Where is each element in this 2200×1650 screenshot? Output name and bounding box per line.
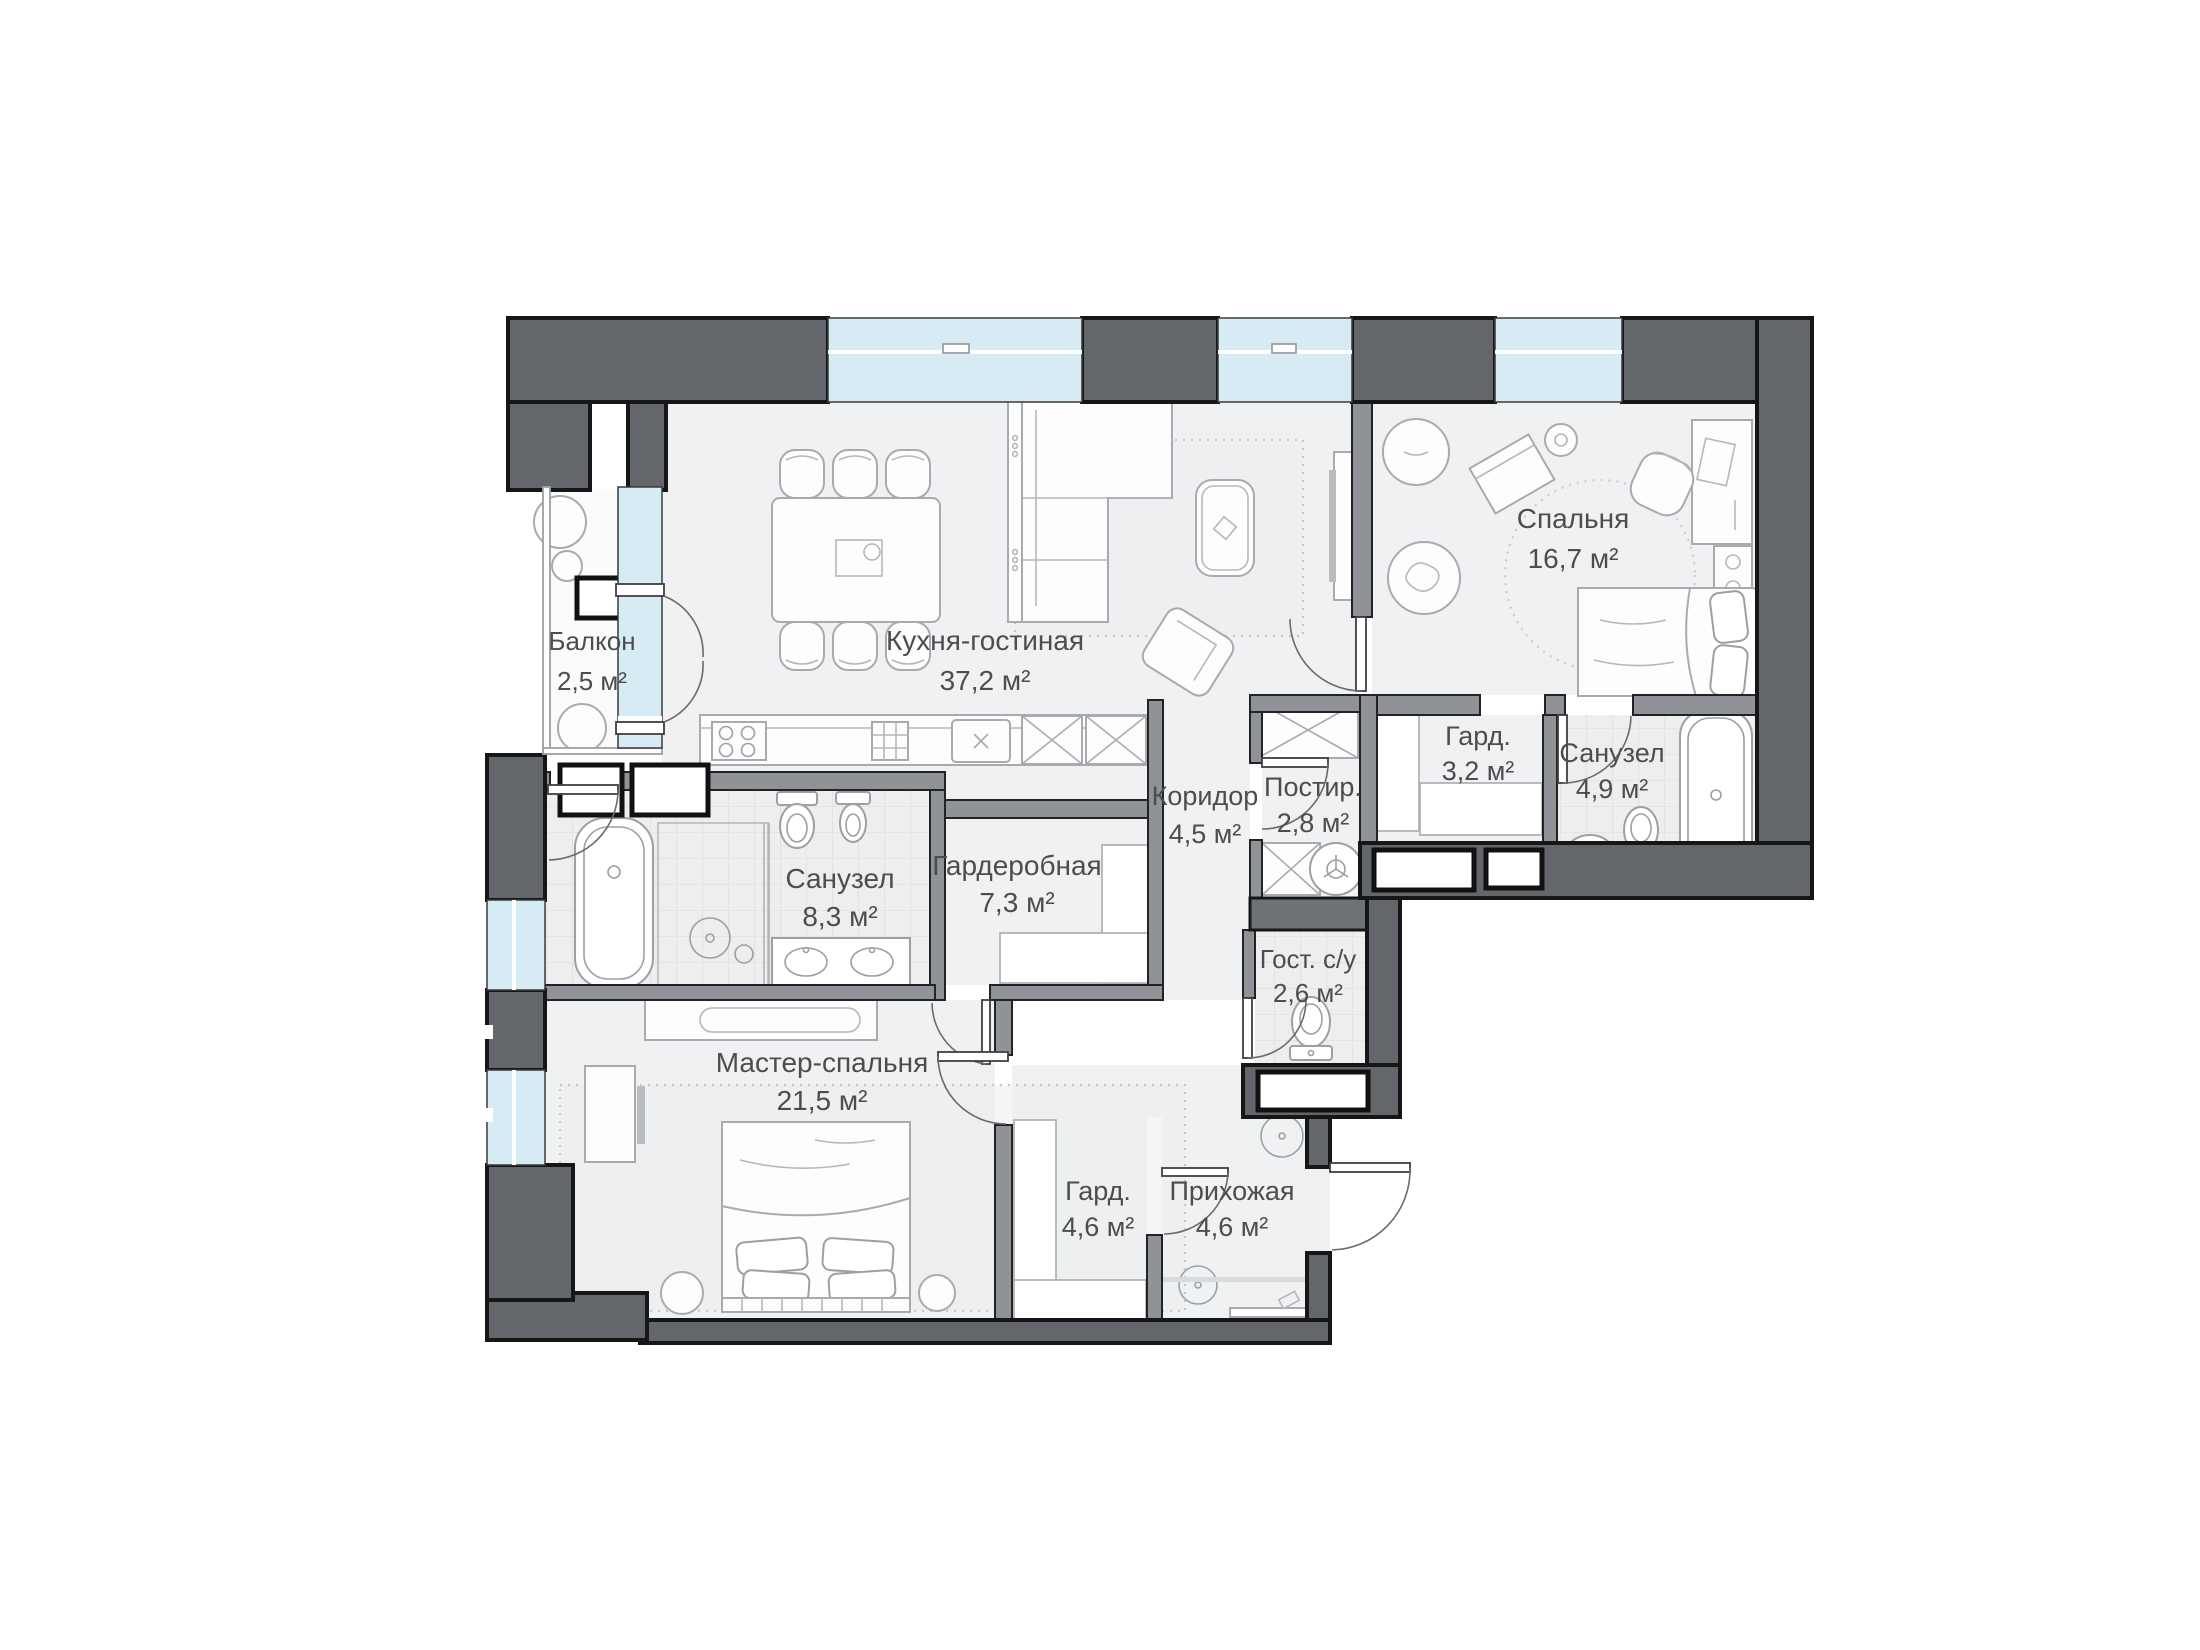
- desk: [1692, 420, 1752, 544]
- room-label-hallway-name: Прихожая: [1169, 1176, 1294, 1206]
- guest-wc-door: [1243, 998, 1252, 1058]
- laundry-door: [1262, 758, 1328, 767]
- room-label-hallway-area: 4,6 м²: [1196, 1212, 1269, 1242]
- room-label-wardrobe-hall-name: Гард.: [1065, 1176, 1131, 1206]
- tv-cabinet: [585, 1066, 635, 1162]
- wardrobe-shelving: [1014, 1280, 1146, 1322]
- master-bath-door: [548, 785, 618, 794]
- pillow: [1709, 644, 1748, 697]
- room-label-walkin-closet-name: Гардеробная: [932, 850, 1101, 881]
- balcony-wall: [543, 748, 662, 754]
- pillow: [736, 1237, 809, 1275]
- room-label-bedroom-area: 16,7 м²: [1528, 543, 1619, 574]
- balcony-glazing: [618, 487, 662, 748]
- dishwasher: [872, 722, 908, 760]
- coffee-table: [1196, 480, 1254, 576]
- planter: [534, 496, 586, 548]
- sofa-side-console: [1008, 398, 1022, 622]
- room-label-master-bedroom-name: Мастер-спальня: [716, 1047, 928, 1078]
- room-label-bathroom-bedroom-area: 4,9 м²: [1576, 774, 1649, 804]
- wardrobe-shelving: [1377, 715, 1419, 831]
- bidet-back: [836, 792, 870, 804]
- master-bed: [722, 1122, 910, 1312]
- dining-chair: [833, 450, 877, 498]
- room-label-guest-wc-area: 2,6 м²: [1273, 978, 1343, 1008]
- room-label-kitchen-living-name: Кухня-гостиная: [886, 625, 1084, 656]
- pillow: [822, 1238, 894, 1275]
- room-label-bedroom-name: Спальня: [1517, 503, 1630, 534]
- balcony-wall: [543, 487, 550, 754]
- double-vanity: [772, 938, 910, 986]
- master-bedroom-door: [938, 1052, 1008, 1061]
- wardrobe-shelving: [1420, 783, 1542, 835]
- tv-screen: [1329, 470, 1336, 582]
- room-label-corridor-name: Коридор: [1152, 781, 1259, 811]
- dining-chair: [780, 622, 824, 670]
- cooktop: [712, 722, 766, 760]
- room-label-bathroom-master-name: Санузел: [785, 863, 894, 894]
- balcony-door-leaf: [616, 584, 664, 596]
- bedroom-bed: [1578, 588, 1758, 698]
- room-label-wardrobe-bedroom-area: 3,2 м²: [1442, 756, 1515, 786]
- room-label-guest-wc-name: Гост. с/у: [1260, 944, 1357, 974]
- room-label-laundry-area: 2,8 м²: [1277, 808, 1350, 838]
- bedroom-door: [1356, 617, 1366, 691]
- room-label-wardrobe-hall-area: 4,6 м²: [1062, 1212, 1135, 1242]
- dining-chair: [886, 450, 930, 498]
- pillow: [1709, 590, 1749, 644]
- balcony-door-leaf: [616, 722, 664, 734]
- room-label-bathroom-master-area: 8,3 м²: [802, 901, 877, 932]
- window: [1218, 318, 1352, 402]
- room-label-corridor-area: 4,5 м²: [1169, 819, 1242, 849]
- window-vent: [1272, 344, 1296, 353]
- planter: [558, 704, 606, 752]
- nightstand: [919, 1275, 955, 1311]
- blanket: [1578, 588, 1696, 696]
- stool: [1545, 424, 1577, 456]
- room-label-master-bedroom-area: 21,5 м²: [777, 1085, 868, 1116]
- dresser: [645, 1000, 877, 1040]
- room-label-balcony-area: 2,5 м²: [557, 666, 627, 696]
- kitchen-counter: [700, 715, 1148, 765]
- room-label-balcony-name: Балкон: [548, 626, 635, 656]
- window: [1495, 318, 1622, 402]
- wardrobe-shelving: [1014, 1120, 1056, 1282]
- window-vent: [943, 344, 969, 353]
- threshold: [1162, 1277, 1307, 1282]
- hall-wardrobe-door: [1162, 1168, 1228, 1176]
- entry-door: [1330, 1163, 1410, 1172]
- toilet-tank: [1290, 1046, 1332, 1060]
- dining-chair: [780, 450, 824, 498]
- kids-rug: [1388, 542, 1460, 614]
- room-label-bathroom-bedroom-name: Санузел: [1559, 738, 1664, 768]
- nightstand: [661, 1272, 703, 1314]
- dining-chair: [833, 622, 877, 670]
- room-label-wardrobe-bedroom-name: Гард.: [1445, 721, 1511, 751]
- window: [828, 318, 1082, 402]
- room-label-laundry-name: Постир.: [1264, 772, 1362, 802]
- closet-shelving: [1000, 933, 1148, 983]
- room-label-walkin-closet-area: 7,3 м²: [979, 887, 1054, 918]
- pouf: [1383, 419, 1449, 485]
- shower: [658, 823, 768, 985]
- dining-table: [772, 498, 940, 622]
- shoe-bench: [1230, 1308, 1310, 1317]
- room-label-kitchen-living-area: 37,2 м²: [940, 665, 1031, 696]
- floor-plan: Балкон 2,5 м² Кухня-гостиная 37,2 м² Спа…: [0, 0, 2200, 1650]
- bathtub: [575, 818, 653, 988]
- tv-screen: [637, 1086, 645, 1144]
